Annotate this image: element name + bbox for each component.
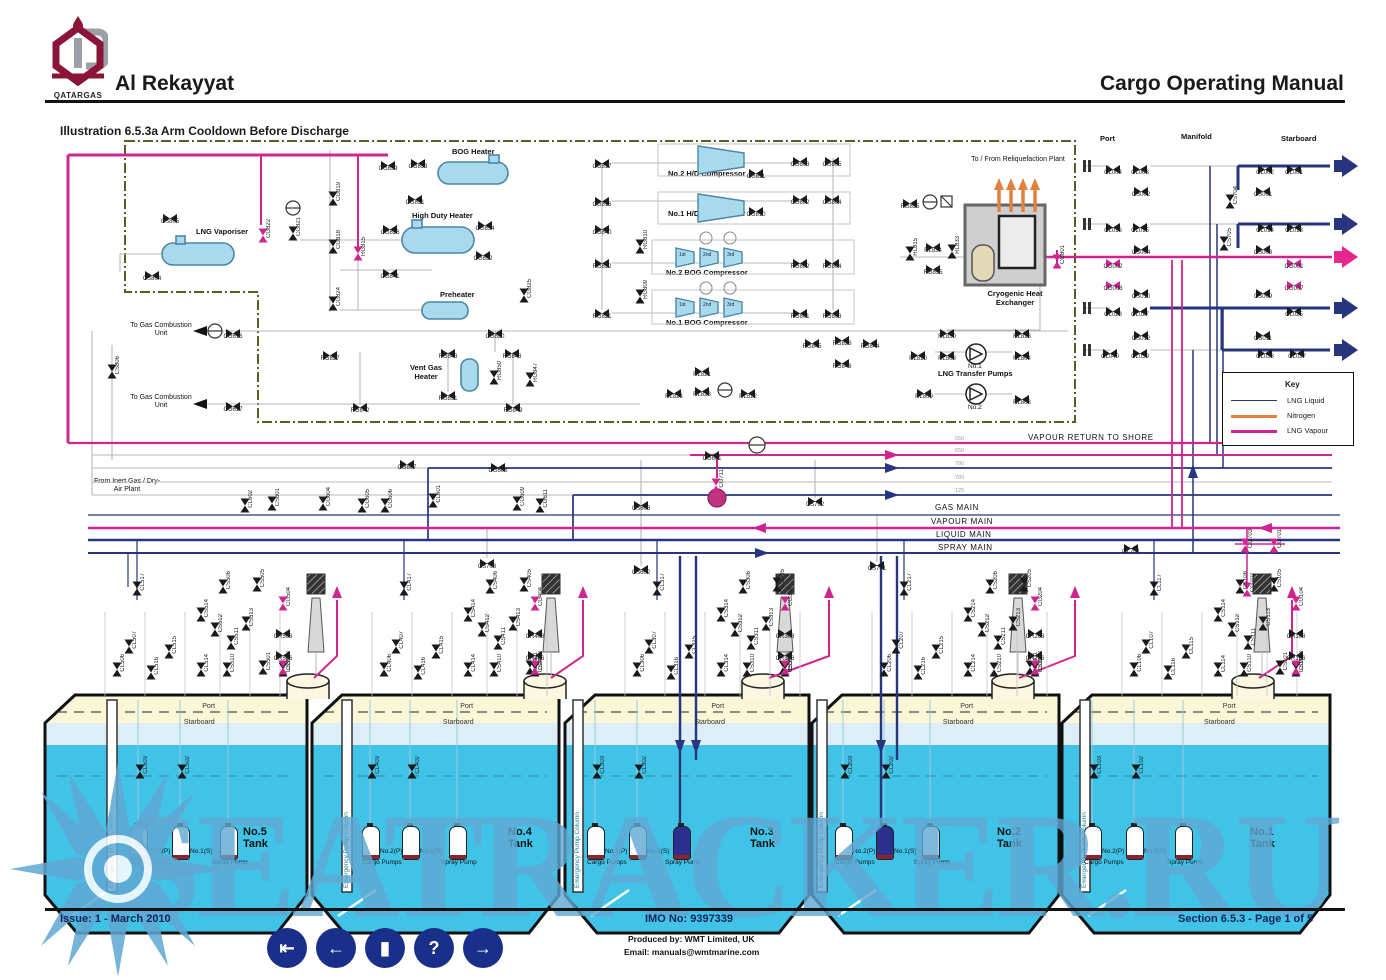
valve-CL307[interactable]: CL307 (642, 638, 656, 647)
valve-CS001[interactable]: CS001 (1256, 183, 1270, 192)
valve-CG839[interactable]: CG839 (381, 157, 395, 166)
footer-produced-by: Produced by: WMT Limited, UK (628, 934, 755, 944)
valve-CL016[interactable]: CL016 (1106, 219, 1120, 228)
valve-CG820[interactable]: CG820 (488, 325, 502, 334)
valve-CS705[interactable]: CS705 (1217, 235, 1231, 244)
valve-CL025[interactable]: CL025 (1287, 303, 1301, 312)
valve-CS012[interactable]: CS012 (1134, 327, 1148, 336)
valve-CG304[interactable]: CG304 (778, 595, 792, 604)
valve-CL107[interactable]: CL107 (1139, 638, 1153, 647)
valve-CS513[interactable]: CS513 (239, 615, 253, 624)
valve-CG802[interactable]: CG802 (793, 191, 807, 200)
valve-CS205[interactable]: CS205 (1017, 576, 1031, 585)
valve-RG810[interactable]: RG810 (633, 238, 647, 247)
valve-CS106[interactable]: CS106 (1233, 578, 1247, 587)
valve-RL804[interactable]: RL804 (1015, 347, 1029, 356)
valve-CL002[interactable]: CL002 (1258, 161, 1272, 170)
valve-CS314[interactable]: CS314 (714, 606, 728, 615)
valve-CG604[interactable]: CG604 (316, 495, 330, 504)
valve-CL601[interactable]: CL601 (426, 492, 440, 501)
valve-RG842[interactable]: RG842 (353, 399, 367, 408)
valve-CL207[interactable]: CL207 (889, 638, 903, 647)
valve-CL507[interactable]: CL507 (122, 638, 136, 647)
valve-CG007[interactable]: CG007 (1287, 277, 1301, 286)
tank-2-starboard-label: Starboard (943, 719, 974, 726)
valve-CG832[interactable]: CG832 (476, 247, 490, 256)
valve-CS112[interactable]: CS112 (1225, 621, 1239, 630)
compressor-stage-label: 2nd (703, 252, 711, 258)
nav-first-button[interactable]: ⇤ (267, 928, 307, 968)
valve-CG822[interactable]: CG822 (256, 227, 270, 236)
watermark-sun-logo (8, 762, 228, 977)
valve-CG701[interactable]: CG701 (1267, 537, 1281, 546)
valve-CS111[interactable]: CS111 (1241, 634, 1255, 643)
valve-RL833[interactable]: RL833 (945, 243, 959, 252)
valve-CL406[interactable]: CL406 (377, 661, 391, 670)
valve-CS406[interactable]: CS406 (483, 578, 497, 587)
machinery-boundary (125, 141, 1075, 422)
valve-RG809[interactable]: RG809 (633, 288, 647, 297)
valve-CS703[interactable]: CS703 (480, 555, 494, 564)
valve-CL403[interactable]: CL403 (365, 763, 379, 772)
valve-CL215[interactable]: CL215 (929, 643, 943, 652)
valve-RL834[interactable]: RL834 (926, 239, 940, 248)
valve-CL203[interactable]: CL203 (838, 763, 852, 772)
valve-CG607[interactable]: CG607 (400, 456, 414, 465)
valve-CL515[interactable]: CL515 (162, 643, 176, 652)
compressor-stage-label: 1st (679, 302, 686, 308)
valve-CS411[interactable]: CS411 (491, 634, 505, 643)
valve-CS603[interactable]: CS603 (634, 497, 648, 506)
valve-CG608[interactable]: CG608 (491, 459, 505, 468)
valve-CS211[interactable]: CS211 (991, 634, 1005, 643)
valve-RG850[interactable]: RG850 (487, 369, 501, 378)
valve-CL314[interactable]: CL314 (714, 661, 728, 670)
compressor-stage-label: 2nd (703, 302, 711, 308)
valve-CR208[interactable]: CR208 (1028, 625, 1042, 634)
valve-CR108[interactable]: CR108 (1289, 625, 1303, 634)
valve-CS405[interactable]: CS405 (517, 576, 531, 585)
valve-CG606[interactable]: CG606 (378, 497, 392, 506)
valve-CL407[interactable]: CL407 (389, 638, 403, 647)
valve-CS410[interactable]: CS410 (487, 661, 501, 670)
valve-RG846[interactable]: RG846 (835, 355, 849, 364)
valve-CS602[interactable]: CS602 (634, 561, 648, 570)
valve-CG825[interactable]: CG825 (517, 287, 531, 296)
valve-CG833[interactable]: CG833 (411, 155, 425, 164)
key-nitrogen: Nitrogen (1287, 411, 1315, 420)
valve-CG605[interactable]: CG605 (355, 497, 369, 506)
valve-RG847[interactable]: RG847 (523, 371, 537, 380)
valve-CS305[interactable]: CS305 (770, 576, 784, 585)
valve-CL417[interactable]: CL417 (397, 580, 411, 589)
valve-CL415[interactable]: CL415 (429, 643, 443, 652)
valve-CS512[interactable]: CS512 (208, 621, 222, 630)
tank-4-starboard-label: Starboard (443, 719, 474, 726)
valve-CG711[interactable]: CG711 (709, 477, 723, 486)
valve-CG104[interactable]: CG104 (1289, 595, 1303, 604)
valve-CG810[interactable]: CG810 (749, 203, 763, 212)
valve-RL824[interactable]: RL824 (667, 385, 681, 394)
valve-CS510[interactable]: CS510 (220, 661, 234, 670)
valve-CG817[interactable]: CG817 (595, 155, 609, 164)
valve-CS310[interactable]: CS310 (740, 661, 754, 670)
nav-help-button[interactable]: ? (414, 928, 454, 968)
valve-RG849[interactable]: RG849 (506, 399, 520, 408)
valve-RG822[interactable]: RG822 (595, 255, 609, 264)
valve-RG851[interactable]: RG851 (441, 387, 455, 396)
valve-RG826[interactable]: RG826 (835, 332, 849, 341)
compressor-stage-label: 3rd (727, 252, 734, 258)
key-box: Key LNG Liquid Nitrogen LNG Vapour (1222, 372, 1354, 446)
valve-CG831[interactable]: CG831 (408, 191, 422, 200)
footer-issue: Issue: 1 - March 2010 (60, 913, 171, 925)
valve-RL822[interactable]: RL822 (741, 385, 755, 394)
valve-CG834[interactable]: CG834 (478, 217, 492, 226)
valve-CG840[interactable]: CG840 (595, 221, 609, 230)
valve-CL038[interactable]: CL038 (1258, 345, 1272, 354)
valve-CS501[interactable]: CS501 (256, 659, 270, 668)
compressor-stage-label: 3rd (727, 302, 734, 308)
valve-CL106[interactable]: CL106 (1127, 661, 1141, 670)
valve-CS702[interactable]: CS702 (808, 493, 822, 502)
valve-CG801[interactable]: CG801 (1050, 253, 1064, 262)
valve-CS414[interactable]: CS414 (461, 606, 475, 615)
valve-CL414[interactable]: CL414 (461, 661, 475, 670)
valve-RG801[interactable]: RG801 (793, 305, 807, 314)
valve-CG811[interactable]: CG811 (749, 165, 763, 174)
valve-RL813[interactable]: RL813 (1015, 325, 1029, 334)
valve-CS003[interactable]: CS003 (1256, 241, 1270, 250)
valve-CS505[interactable]: CS505 (250, 576, 264, 585)
tank-1-starboard-label: Starboard (1204, 719, 1235, 726)
valve-CS101[interactable]: CS101 (1273, 659, 1287, 668)
valve-CG203[interactable]: CG203 (1028, 659, 1042, 668)
valve-CG803[interactable]: CG803 (793, 153, 807, 162)
valve-CS114[interactable]: CS114 (1211, 606, 1225, 615)
valve-CG403[interactable]: CG403 (528, 659, 542, 668)
valve-CS010[interactable]: CS010 (1134, 285, 1148, 294)
valve-CG821[interactable]: CG821 (286, 225, 300, 234)
valve-CL015[interactable]: CL015 (1133, 219, 1147, 228)
valve-CL214[interactable]: CL214 (961, 661, 975, 670)
valve-CL402[interactable]: CL402 (405, 763, 419, 772)
valve-CG703[interactable]: CG703 (1238, 537, 1252, 546)
valve-CL028[interactable]: CL028 (1106, 303, 1120, 312)
footer-email: Email: manuals@wmtmarine.com (624, 947, 759, 957)
valve-CG404[interactable]: CG404 (528, 595, 542, 604)
valve-CS701[interactable]: CS701 (870, 557, 884, 566)
valve-CG002[interactable]: CG002 (1106, 255, 1120, 264)
valve-CS210[interactable]: CS210 (987, 661, 1001, 670)
valve-RG848[interactable]: RG848 (505, 345, 519, 354)
valve-RG845[interactable]: RG845 (805, 335, 819, 344)
nav-contents-button[interactable]: ▮ (365, 928, 405, 968)
valve-RG804[interactable]: RG804 (825, 255, 839, 264)
valve-CR308[interactable]: CR308 (778, 625, 792, 634)
valve-RG835[interactable]: RG835 (926, 261, 940, 270)
valve-RL810[interactable]: RL810 (911, 347, 925, 356)
tank-1-port-label: Port (1223, 703, 1236, 710)
valve-CS206[interactable]: CS206 (983, 578, 997, 587)
valve-CG611[interactable]: CG611 (533, 497, 547, 506)
valve-CL001[interactable]: CL001 (1287, 161, 1301, 170)
watermark-text: SEATRACKER.RU (118, 780, 1338, 952)
valve-CL315[interactable]: CL315 (682, 643, 696, 652)
valve-CS511[interactable]: CS511 (224, 634, 238, 643)
valve-CL317[interactable]: CL317 (650, 580, 664, 589)
valve-CG303[interactable]: CG303 (778, 659, 792, 668)
valve-CG601[interactable]: CG601 (705, 447, 719, 456)
valve-CL102[interactable]: CL102 (1129, 763, 1143, 772)
valve-CG204[interactable]: CG204 (1028, 595, 1042, 604)
valve-CG824[interactable]: CG824 (326, 295, 340, 304)
valve-CL206[interactable]: CL206 (877, 661, 891, 670)
valve-CG805[interactable]: CG805 (825, 153, 839, 162)
valve-CR508[interactable]: CR508 (276, 625, 290, 634)
valve-CS213[interactable]: CS213 (1006, 615, 1020, 624)
valve-CL103[interactable]: CL103 (1087, 763, 1101, 772)
valve-CL116[interactable]: CL116 (1161, 664, 1175, 673)
valve-CS306[interactable]: CS306 (736, 578, 750, 587)
valve-CL302[interactable]: CL302 (632, 763, 646, 772)
valve-CG504[interactable]: CG504 (276, 595, 290, 604)
valve-CG609[interactable]: CG609 (510, 495, 524, 504)
valve-RG803[interactable]: RG803 (825, 305, 839, 314)
nav-next-button[interactable]: → (463, 928, 503, 968)
valve-CL303[interactable]: CL303 (590, 763, 604, 772)
valve-CL306[interactable]: CL306 (630, 661, 644, 670)
valve-CS313[interactable]: CS313 (759, 615, 773, 624)
valve-RG821[interactable]: RG821 (595, 305, 609, 314)
compressor-stage-label: 1st (679, 252, 686, 258)
valve-CG103[interactable]: CG103 (1289, 659, 1303, 668)
valve-CL506[interactable]: CL506 (110, 661, 124, 670)
valve-CS002[interactable]: CS002 (1134, 183, 1148, 192)
valve-CS312[interactable]: CS312 (728, 621, 742, 630)
valve-CL027[interactable]: CL027 (1133, 303, 1147, 312)
valve-RL821[interactable]: RL821 (695, 363, 709, 372)
valve-CR408[interactable]: CR408 (528, 625, 542, 634)
footer-imo: IMO No: 9397339 (645, 913, 733, 925)
valve-CL517[interactable]: CL517 (130, 580, 144, 589)
valve-CL514[interactable]: CL514 (194, 661, 208, 670)
valve-CL216[interactable]: CL216 (911, 664, 925, 673)
valve-CL004[interactable]: CL004 (1106, 161, 1120, 170)
valve-RG815[interactable]: RG815 (351, 245, 365, 254)
valve-CS011[interactable]: CS011 (1256, 327, 1270, 336)
valve-CG816[interactable]: CG816 (595, 193, 609, 202)
tank-5-port-label: Port (202, 703, 215, 710)
valve-RL823[interactable]: RL823 (695, 383, 709, 392)
valve-CL114[interactable]: CL114 (1211, 661, 1225, 670)
valve-CS110[interactable]: CS110 (1237, 661, 1251, 670)
nav-back-button[interactable]: ← (316, 928, 356, 968)
valve-CL602[interactable]: CL602 (238, 497, 252, 506)
valve-CL115[interactable]: CL115 (1179, 643, 1193, 652)
valve-CG617[interactable]: CG617 (226, 398, 240, 407)
valve-RL808[interactable]: RL808 (940, 347, 954, 356)
valve-CS804[interactable]: CS804 (145, 267, 159, 276)
key-title: Key (1285, 380, 1300, 389)
manual-page: QATARGAS Al Rekayyat Cargo Operating Man… (0, 0, 1386, 980)
tank-3-port-label: Port (711, 703, 724, 710)
valve-CS704[interactable]: CS704 (1223, 193, 1237, 202)
valve-CL117[interactable]: CL117 (1147, 580, 1161, 589)
valve-CL202[interactable]: CL202 (879, 763, 893, 772)
valve-CG503[interactable]: CG503 (276, 659, 290, 668)
valve-CL516[interactable]: CL516 (144, 664, 158, 673)
valve-CS212[interactable]: CS212 (975, 621, 989, 630)
valve-CG616[interactable]: CG616 (226, 325, 240, 334)
valve-CL217[interactable]: CL217 (897, 580, 911, 589)
valve-RG827[interactable]: RG827 (323, 347, 337, 356)
valve-CS806[interactable]: CS806 (105, 363, 119, 372)
valve-CL416[interactable]: CL416 (411, 664, 425, 673)
valve-CG819[interactable]: CG819 (326, 190, 340, 199)
valve-CL040[interactable]: CL040 (1103, 345, 1117, 354)
valve-RG843[interactable]: RG843 (441, 345, 455, 354)
valve-CS413[interactable]: CS413 (506, 615, 520, 624)
valve-CL316[interactable]: CL316 (664, 664, 678, 673)
valve-CS311[interactable]: CS311 (744, 634, 758, 643)
tank-4-port-label: Port (460, 703, 473, 710)
valve-CS004[interactable]: CS004 (1134, 241, 1148, 250)
footer-section: Section 6.5.3 - Page 1 of 5 (1178, 913, 1313, 925)
valve-RG802[interactable]: RG802 (793, 255, 807, 264)
valve-CS514[interactable]: CS514 (194, 606, 208, 615)
valve-CS105[interactable]: CS105 (1267, 576, 1281, 585)
valve-RG844[interactable]: RG844 (863, 335, 877, 344)
valve-RG825[interactable]: RG825 (903, 195, 917, 204)
key-lng-liquid: LNG Liquid (1287, 396, 1325, 405)
valve-CL003[interactable]: CL003 (1133, 161, 1147, 170)
valve-RL803[interactable]: RL803 (1015, 391, 1029, 400)
valve-CL039[interactable]: CL039 (1133, 345, 1147, 354)
valve-RL815[interactable]: RL815 (903, 245, 917, 254)
valve-CL037[interactable]: CL037 (1290, 345, 1304, 354)
valve-RL809[interactable]: RL809 (917, 385, 931, 394)
tank-5-starboard-label: Starboard (184, 719, 215, 726)
valve-CS113[interactable]: CS113 (1256, 615, 1270, 624)
valve-CG818[interactable]: CG818 (326, 238, 340, 247)
footer-rule (45, 908, 1345, 911)
valve-CS009[interactable]: CS009 (1256, 285, 1270, 294)
valve-CS601[interactable]: CS601 (265, 495, 279, 504)
valve-CG826[interactable]: CG826 (383, 221, 397, 230)
valve-CG841[interactable]: CG841 (383, 265, 397, 274)
valve-CS412[interactable]: CS412 (475, 621, 489, 630)
tank-2-port-label: Port (960, 703, 973, 710)
valve-CL013[interactable]: CL013 (1287, 219, 1301, 228)
valve-CL701[interactable]: CL701 (1124, 540, 1138, 549)
valve-CG804[interactable]: CG804 (825, 191, 839, 200)
valve-CS214[interactable]: CS214 (961, 606, 975, 615)
key-lng-vapour: LNG Vapour (1287, 426, 1328, 435)
tank-3-starboard-label: Starboard (694, 719, 725, 726)
valve-CS805[interactable]: CS805 (163, 210, 177, 219)
valve-CG008[interactable]: CG008 (1106, 277, 1120, 286)
valve-CS506[interactable]: CS506 (216, 578, 230, 587)
valve-CG001[interactable]: CG001 (1287, 255, 1301, 264)
valve-CL014[interactable]: CL014 (1258, 219, 1272, 228)
valve-RL830[interactable]: RL830 (940, 325, 954, 334)
